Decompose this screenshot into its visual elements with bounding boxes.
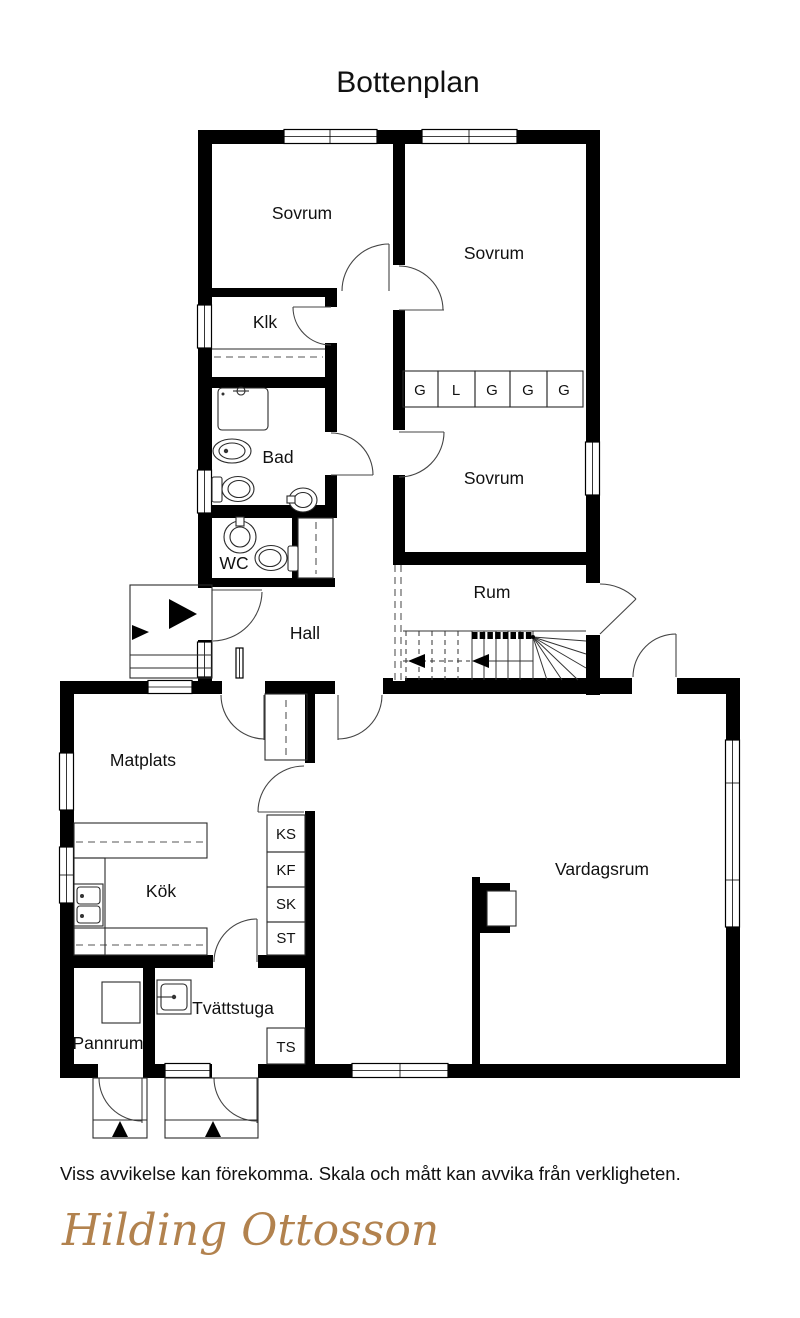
window bbox=[165, 1064, 210, 1078]
wardrobe-label: L bbox=[452, 382, 460, 399]
door-vardagsrum-right bbox=[633, 634, 676, 677]
door-pannrum bbox=[99, 1078, 142, 1123]
wardrobe-label: G bbox=[558, 382, 570, 399]
stairs-upper-flight bbox=[403, 631, 470, 680]
door-tvattstuga bbox=[214, 1078, 257, 1123]
cabinet-label: ST bbox=[276, 930, 295, 947]
room-labels: Sovrum Sovrum Sovrum Klk Bad WC Hall Rum… bbox=[72, 203, 649, 1053]
window bbox=[198, 470, 212, 513]
door-bad bbox=[331, 433, 373, 475]
brand-logo: Hilding Ottosson bbox=[61, 1205, 439, 1256]
cabinet-label: TS bbox=[276, 1039, 295, 1056]
window bbox=[284, 130, 377, 144]
cabinet-label: KF bbox=[276, 862, 295, 879]
back-porches bbox=[93, 1078, 258, 1138]
window bbox=[148, 681, 192, 694]
door-sovrum2 bbox=[399, 266, 444, 310]
stair-direction-arrow bbox=[472, 654, 489, 668]
room-label-bad: Bad bbox=[262, 447, 293, 467]
floorplan-canvas: Bottenplan bbox=[0, 0, 800, 1318]
sink-laundry bbox=[157, 980, 191, 1014]
stair-balustrade bbox=[472, 632, 531, 639]
porch-arrow bbox=[205, 1121, 221, 1137]
shower bbox=[218, 387, 268, 430]
sink-wc bbox=[224, 517, 256, 553]
laundry-cabinet: TS bbox=[267, 1028, 305, 1064]
wardrobe-label: G bbox=[414, 382, 426, 399]
door-matplats bbox=[221, 695, 264, 740]
window bbox=[198, 305, 212, 348]
room-label-klk: Klk bbox=[253, 312, 278, 332]
window bbox=[422, 130, 517, 144]
wardrobe-row: G L G G G bbox=[403, 371, 583, 407]
door-sovrum3 bbox=[399, 432, 444, 477]
room-label-sovrum2: Sovrum bbox=[464, 243, 524, 263]
wardrobe-label: G bbox=[486, 382, 498, 399]
boiler bbox=[102, 982, 140, 1023]
window bbox=[198, 642, 212, 677]
room-label-hall: Hall bbox=[290, 623, 320, 643]
page-title: Bottenplan bbox=[336, 66, 479, 99]
window bbox=[352, 1064, 448, 1078]
room-label-pannrum: Pannrum bbox=[72, 1033, 143, 1053]
door-entry bbox=[212, 590, 262, 641]
room-label-sovrum1: Sovrum bbox=[272, 203, 332, 223]
cabinet-label: KS bbox=[276, 826, 296, 843]
door-vardagsrum-left bbox=[338, 695, 382, 740]
room-label-tvattstuga: Tvättstuga bbox=[192, 998, 274, 1018]
porch-arrow bbox=[112, 1121, 128, 1137]
window bbox=[726, 740, 740, 927]
room-label-sovrum3: Sovrum bbox=[464, 468, 524, 488]
disclaimer-text: Viss avvikelse kan förekomma. Skala och … bbox=[60, 1163, 681, 1184]
door-rum-exit bbox=[600, 584, 636, 634]
door-matplats-vardagsrum bbox=[258, 766, 304, 812]
bidet bbox=[213, 439, 251, 463]
room-label-kok: Kök bbox=[146, 881, 176, 901]
entry-arrow bbox=[169, 599, 197, 629]
window bbox=[60, 847, 74, 903]
stair-direction-arrow bbox=[408, 654, 425, 668]
sink-kitchen bbox=[74, 884, 103, 926]
room-label-wc: WC bbox=[219, 553, 248, 573]
cabinet-label: SK bbox=[276, 896, 296, 913]
stairs bbox=[403, 631, 586, 680]
wardrobe-label: G bbox=[522, 382, 534, 399]
door-sovrum1 bbox=[342, 244, 389, 291]
kitchen-cabinet-column: KS KF SK ST bbox=[267, 815, 305, 955]
window bbox=[586, 442, 600, 495]
radiator bbox=[236, 648, 243, 678]
entry-arrow-small bbox=[132, 625, 149, 640]
toilet-wc bbox=[255, 546, 298, 572]
toilet-bad bbox=[212, 477, 254, 503]
fireplace bbox=[487, 891, 516, 926]
window bbox=[60, 753, 74, 810]
room-label-vardagsrum: Vardagsrum bbox=[555, 859, 649, 879]
room-label-rum: Rum bbox=[474, 582, 511, 602]
room-label-matplats: Matplats bbox=[110, 750, 176, 770]
